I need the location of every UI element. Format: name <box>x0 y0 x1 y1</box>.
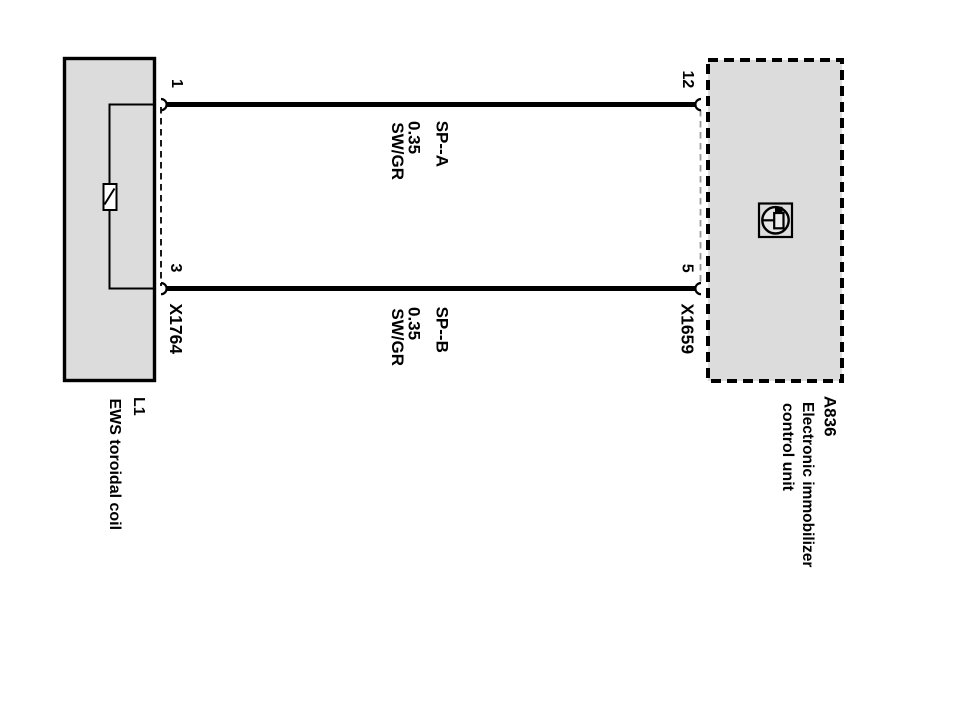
svg-text:5: 5 <box>679 264 696 273</box>
svg-text:EWS toroidal coil: EWS toroidal coil <box>106 399 123 531</box>
svg-text:X1659: X1659 <box>678 304 698 355</box>
svg-text:SP--A: SP--A <box>433 121 452 167</box>
svg-text:SP--B: SP--B <box>433 307 452 353</box>
svg-text:SW/GR: SW/GR <box>388 122 407 180</box>
svg-text:L1: L1 <box>130 397 147 416</box>
svg-text:Electronic immobilizer: Electronic immobilizer <box>799 402 816 567</box>
svg-text:X1764: X1764 <box>166 304 186 355</box>
svg-text:A836: A836 <box>821 396 840 437</box>
svg-text:3: 3 <box>167 264 184 273</box>
svg-text:12: 12 <box>679 71 696 89</box>
svg-text:SW/GR: SW/GR <box>388 308 407 366</box>
svg-text:1: 1 <box>168 79 185 88</box>
svg-text:control unit: control unit <box>779 403 796 492</box>
